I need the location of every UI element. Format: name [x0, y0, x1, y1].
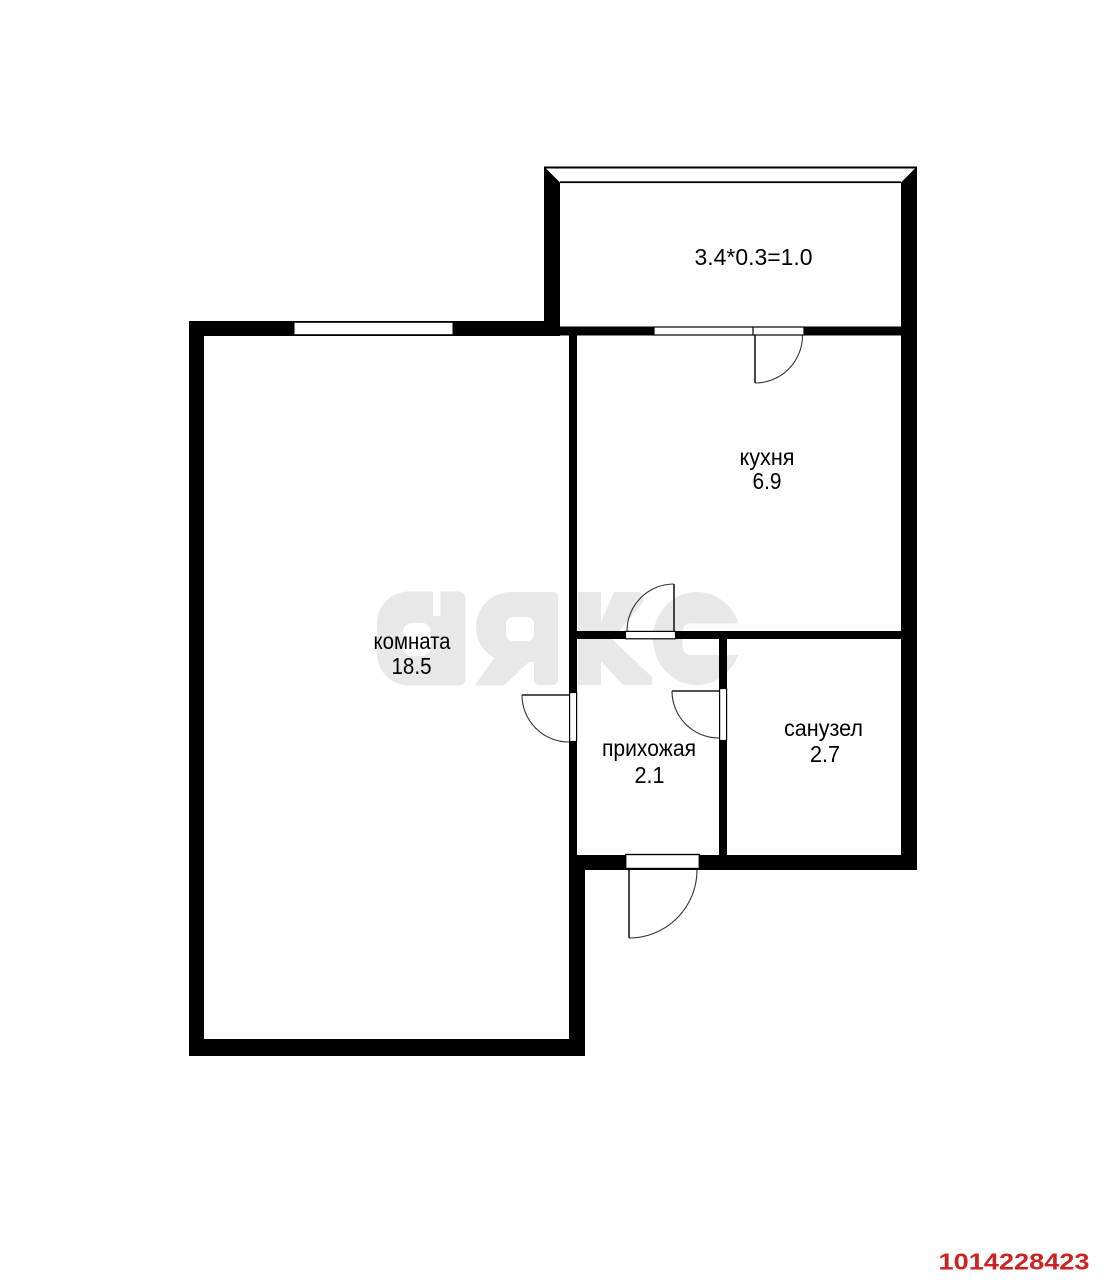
- svg-text:прихожая: прихожая: [602, 735, 696, 761]
- svg-text:комната: комната: [374, 628, 451, 654]
- svg-text:кухня: кухня: [740, 444, 795, 470]
- svg-text:санузел: санузел: [784, 715, 863, 741]
- svg-text:2.1: 2.1: [635, 762, 665, 788]
- svg-text:2.7: 2.7: [810, 741, 840, 767]
- svg-text:6.9: 6.9: [753, 468, 782, 494]
- svg-text:3.4*0.3=1.0: 3.4*0.3=1.0: [695, 244, 813, 270]
- svg-text:1014228423: 1014228423: [939, 1249, 1090, 1275]
- svg-text:18.5: 18.5: [392, 653, 432, 679]
